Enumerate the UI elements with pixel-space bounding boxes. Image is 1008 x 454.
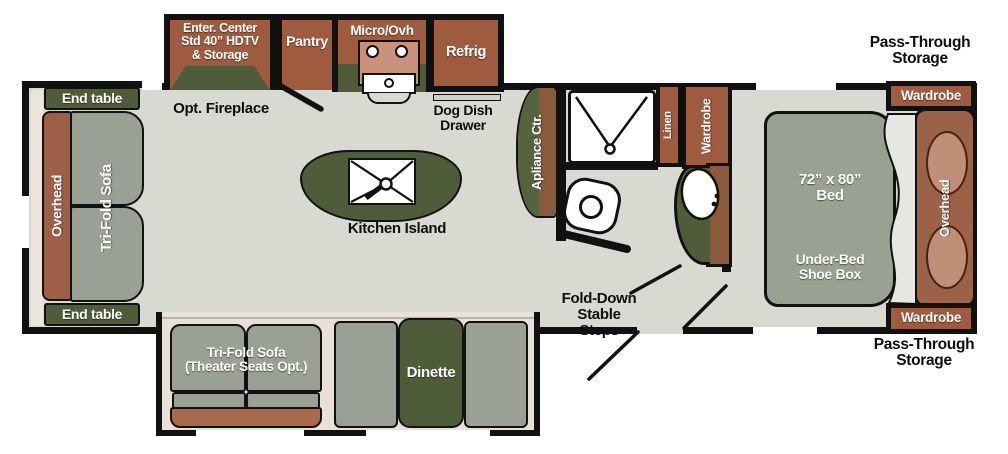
fold-down-steps-label: Fold-Down Stable Steps xyxy=(548,291,650,339)
entertainment-center-label: Enter. Center Std 40” HDTV & Storage xyxy=(170,22,270,62)
floorplan-canvas: End table Overhead Tri-Fold Sofa End tab… xyxy=(0,0,1008,454)
appliance-center-label: Apliance Ctr. xyxy=(518,88,556,216)
bottom-slide-seam xyxy=(162,317,534,319)
refrig-box: Refrig xyxy=(428,14,504,92)
linen-cabinet: Linen xyxy=(656,83,682,167)
theater-sofa-label: Tri-Fold Sofa (Theater Seats Opt.) xyxy=(164,346,328,375)
entry-door-swing xyxy=(589,332,638,379)
sofa-overhead-cabinet: Overhead xyxy=(42,111,72,301)
under-bed-shoe-box-label: Under-Bed Shoe Box xyxy=(767,252,893,282)
linen-label: Linen xyxy=(660,87,678,163)
range-knob xyxy=(384,78,394,88)
end-table-top-label: End table xyxy=(62,91,122,106)
rear-slide-window-gap xyxy=(22,196,29,248)
tri-fold-sofa-label: Tri-Fold Sofa xyxy=(70,115,144,301)
bed-overhead-label: Overhead xyxy=(917,111,973,305)
dinette-bench-left xyxy=(334,321,398,428)
bedroom-wardrobe-top-label: Wardrobe xyxy=(901,89,961,103)
appliance-center: Apliance Ctr. xyxy=(516,86,558,218)
micro-label: Micro/Ovh xyxy=(338,24,426,38)
dog-dish-drawer-label: Dog Dish Drawer xyxy=(411,103,515,133)
bedroom-wardrobe-bottom-label: Wardrobe xyxy=(901,311,961,325)
bedroom-wardrobe-bottom: Wardrobe xyxy=(886,303,976,334)
island-sink xyxy=(348,158,416,205)
fireplace-shape xyxy=(170,66,270,90)
range-icon xyxy=(358,40,420,104)
range-burner-right xyxy=(395,45,408,58)
bedroom-wardrobe-top: Wardrobe xyxy=(886,81,976,111)
dinette-label: Dinette xyxy=(407,365,456,381)
sofa-overhead-label: Overhead xyxy=(44,113,70,299)
bed: 72” x 80” Bed Under-Bed Shoe Box xyxy=(764,111,896,307)
bed-size-label: 72” x 80” Bed xyxy=(767,172,893,204)
range-arc xyxy=(367,93,411,104)
dinette-table: Dinette xyxy=(398,318,464,428)
end-table-bottom: End table xyxy=(44,303,140,326)
entertainment-center-slide: Enter. Center Std 40” HDTV & Storage xyxy=(164,14,276,90)
kitchen-island-label: Kitchen Island xyxy=(317,221,477,237)
bottom-slide-window-left xyxy=(196,430,304,436)
refrig-label: Refrig xyxy=(446,45,486,60)
pass-through-storage-bottom-label: Pass-Through Storage xyxy=(846,337,1002,370)
bottom-slide-window-right xyxy=(366,430,490,436)
opt-fireplace-label: Opt. Fireplace xyxy=(158,101,284,117)
theater-sofa-front xyxy=(170,407,322,428)
range-burner-left xyxy=(366,45,379,58)
dinette-bench-right xyxy=(464,321,528,428)
headboard-overhead-cabinet: Overhead xyxy=(914,108,976,308)
end-table-bottom-label: End table xyxy=(62,307,122,322)
shower-pan xyxy=(568,90,656,164)
pantry-label: Pantry xyxy=(286,34,328,49)
pass-through-door-top xyxy=(756,83,836,90)
dog-dish-drawer-bar xyxy=(433,94,501,101)
bath-wardrobe: Wardrobe xyxy=(682,83,732,169)
tri-fold-sofa-label-wrap: Tri-Fold Sofa xyxy=(70,115,144,301)
end-table-top: End table xyxy=(44,87,140,110)
pass-through-door-bottom xyxy=(753,327,817,334)
pantry-slide: Pantry xyxy=(276,14,338,90)
pass-through-storage-top-label: Pass-Through Storage xyxy=(842,35,998,68)
bath-wardrobe-label: Wardrobe xyxy=(686,87,728,165)
